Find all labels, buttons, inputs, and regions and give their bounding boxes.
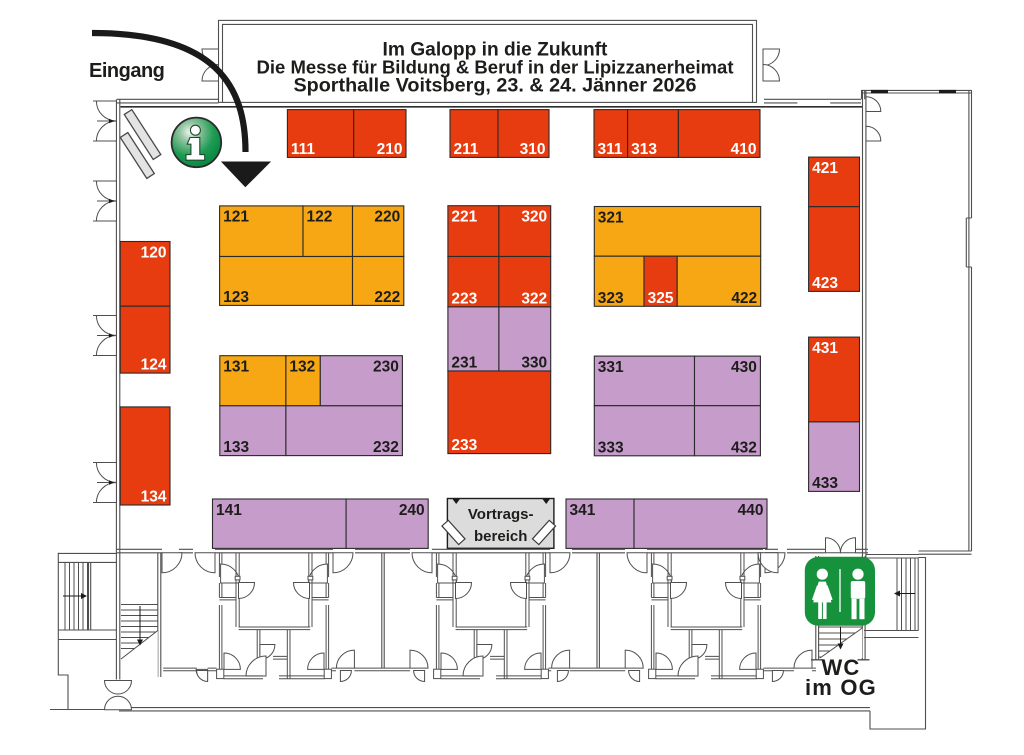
svg-text:322: 322 [521, 290, 547, 307]
svg-text:331: 331 [598, 359, 624, 376]
svg-text:111: 111 [291, 141, 316, 158]
svg-text:bereich: bereich [474, 528, 527, 545]
svg-text:423: 423 [812, 275, 838, 292]
svg-text:231: 231 [451, 355, 477, 372]
svg-text:310: 310 [520, 141, 546, 158]
svg-text:432: 432 [731, 439, 757, 456]
svg-text:422: 422 [731, 290, 757, 307]
svg-text:430: 430 [731, 359, 757, 376]
svg-text:132: 132 [289, 359, 315, 376]
svg-text:341: 341 [570, 502, 596, 519]
svg-text:440: 440 [738, 502, 764, 519]
svg-text:323: 323 [598, 290, 624, 307]
svg-text:222: 222 [374, 289, 400, 306]
svg-text:133: 133 [223, 439, 249, 456]
svg-text:325: 325 [648, 290, 674, 307]
svg-text:433: 433 [812, 475, 838, 492]
svg-text:321: 321 [598, 209, 624, 226]
svg-text:Eingang: Eingang [89, 60, 164, 82]
svg-text:313: 313 [631, 141, 657, 158]
svg-text:120: 120 [141, 244, 167, 261]
svg-text:im OG: im OG [805, 675, 877, 700]
svg-text:122: 122 [307, 209, 333, 226]
svg-text:320: 320 [521, 209, 547, 226]
svg-text:311: 311 [598, 141, 623, 158]
svg-text:232: 232 [373, 439, 399, 456]
svg-text:330: 330 [521, 355, 547, 372]
svg-text:134: 134 [141, 489, 167, 506]
svg-text:123: 123 [223, 289, 249, 306]
svg-text:141: 141 [216, 502, 242, 519]
svg-text:230: 230 [373, 359, 399, 376]
svg-text:233: 233 [451, 437, 477, 454]
svg-text:410: 410 [731, 141, 757, 158]
svg-text:421: 421 [812, 160, 838, 177]
svg-text:223: 223 [451, 290, 477, 307]
svg-text:124: 124 [141, 357, 167, 374]
svg-text:240: 240 [399, 502, 425, 519]
svg-text:431: 431 [812, 340, 838, 357]
svg-text:211: 211 [454, 141, 479, 158]
svg-text:333: 333 [598, 439, 624, 456]
svg-text:121: 121 [223, 209, 249, 226]
svg-text:220: 220 [374, 209, 400, 226]
svg-text:221: 221 [451, 209, 477, 226]
svg-text:Vortrags-: Vortrags- [468, 506, 534, 523]
svg-text:Sporthalle Voitsberg, 23. & 24: Sporthalle Voitsberg, 23. & 24. Jänner 2… [293, 75, 696, 97]
svg-text:210: 210 [377, 141, 403, 158]
svg-text:131: 131 [223, 359, 249, 376]
